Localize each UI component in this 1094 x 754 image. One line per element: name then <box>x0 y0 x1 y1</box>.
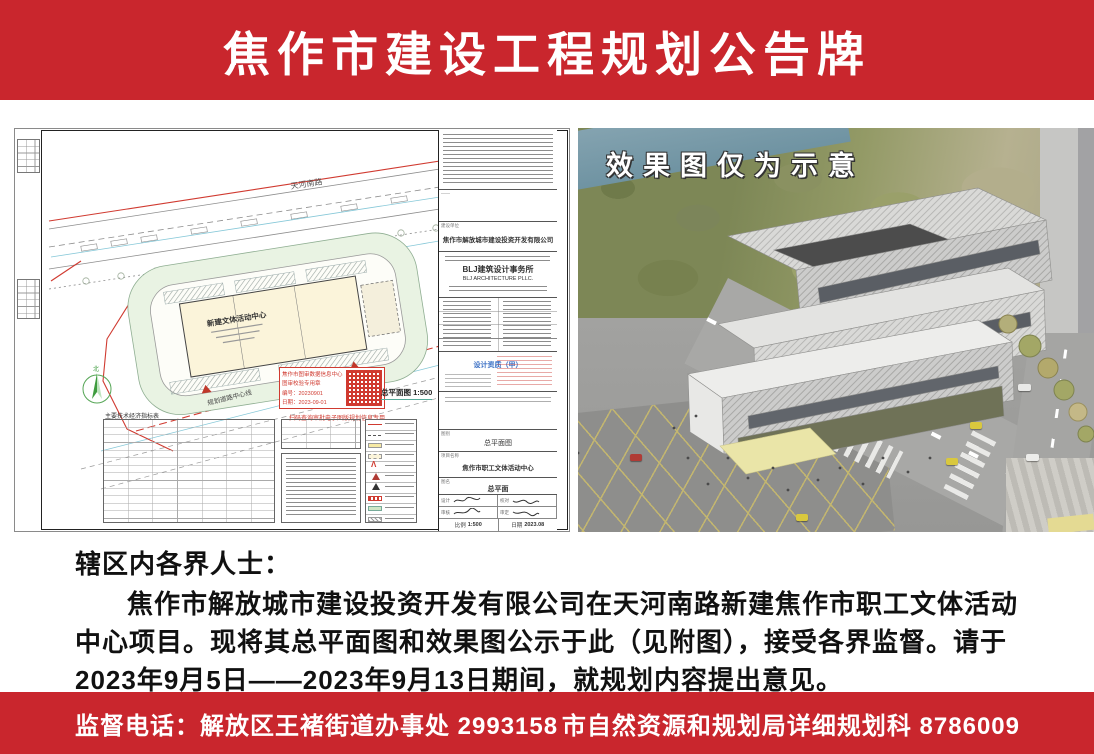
scale-date-row: 比例 1:500 日期 2023.08 <box>439 519 557 531</box>
signature-grid: 设计 校对 审核 审定 <box>439 495 557 519</box>
site-plan-sheet: 天河南路 规划道路中心线 新建文体活动中心 北 焦作市图审数据信息中心 图审校验… <box>14 128 570 532</box>
announcement-board: 焦作市建设工程规划公告牌 <box>0 0 1094 754</box>
rendering-image: 效果图仅为示意 <box>578 128 1094 532</box>
signature-mark <box>511 496 541 505</box>
field-grid <box>439 298 557 352</box>
car <box>1026 454 1039 461</box>
project-label: 项目名称 <box>441 453 459 459</box>
drawing-name-row: 图名 总平面 <box>439 478 557 495</box>
scale-label: 总平面图 1:500 <box>381 387 432 400</box>
client-row: 建设单位 焦作市解放城市建设投资开发有限公司 <box>439 222 557 252</box>
footer-band: 监督电话：解放区王褚街道办事处 2993158 市自然资源和规划局详细规划科 8… <box>0 692 1094 754</box>
design-firm-row: BLJ建筑设计事务所 BLJ ARCHITECTURE PLLC. <box>439 252 557 298</box>
firm-name-cn: BLJ建筑设计事务所 <box>439 264 557 275</box>
rendering-caption: 效果图仅为示意 <box>606 144 865 183</box>
certificate-row <box>439 392 557 430</box>
general-notes <box>439 130 557 190</box>
notice-text: 辖区内各界人士： 焦作市解放城市建设投资开发有限公司在天河南路新建焦作市职工文体… <box>75 545 1025 699</box>
margin-revision-table <box>17 139 40 173</box>
building-massing <box>578 128 1094 532</box>
supervision-phone: 监督电话：解放区王褚街道办事处 2993158 <box>75 706 558 741</box>
scale-value: 1:500 <box>468 522 482 528</box>
sheet-type-row: 图别 总平面图 <box>439 430 557 452</box>
signature-mark <box>452 508 482 517</box>
sub-indicator-table <box>281 419 361 449</box>
notice-body: 焦作市解放城市建设投资开发有限公司在天河南路新建焦作市职工文体活动中心项目。现将… <box>75 585 1025 699</box>
title-block: —— 建设单位 焦作市解放城市建设投资开发有限公司 BLJ建筑设计事务所 BLJ… <box>438 130 557 531</box>
firm-name-en: BLJ ARCHITECTURE PLLC. <box>439 276 557 282</box>
car <box>796 514 808 521</box>
client-name: 焦作市解放城市建设投资开发有限公司 <box>439 234 557 244</box>
notes-box <box>281 453 361 523</box>
compass-label: 北 <box>93 365 99 373</box>
qualification-row: 设计资质（甲） <box>439 352 557 392</box>
car <box>970 422 982 429</box>
stamp-line: 图审校验专用章 <box>282 379 344 387</box>
project-name: 焦作市职工文体活动中心 <box>439 462 557 472</box>
signature-mark <box>452 496 482 505</box>
sig-label: 设计 <box>441 498 450 504</box>
notice-salutation: 辖区内各界人士： <box>75 545 1025 583</box>
sig-label: 校对 <box>500 498 509 504</box>
margin-revision-table <box>17 279 40 319</box>
car <box>946 458 958 465</box>
client-label: 建设单位 <box>441 223 459 229</box>
date-field-label: 日期 <box>511 521 522 529</box>
scale-field-label: 比例 <box>455 521 466 529</box>
drawing-name: 总平面 <box>439 484 557 494</box>
stamp-line: 编号：20230901 <box>282 389 344 397</box>
car <box>630 454 642 461</box>
sig-label: 审定 <box>500 510 509 516</box>
car <box>1018 384 1031 391</box>
header-band: 焦作市建设工程规划公告牌 <box>0 0 1094 100</box>
sheet-type: 总平面图 <box>439 438 557 448</box>
signature-mark <box>511 508 541 517</box>
indicator-table <box>103 419 275 523</box>
date-value: 2023.08 <box>524 522 544 528</box>
project-row: 项目名称 焦作市职工文体活动中心 <box>439 452 557 478</box>
road-label-top: 天河南路 <box>290 176 323 191</box>
page-title: 焦作市建设工程规划公告牌 <box>223 16 871 85</box>
qr-code <box>346 370 382 406</box>
stamp-line: 日期：2023-09-01 <box>282 398 344 406</box>
stamp-line: 焦作市图审数据信息中心 <box>282 370 344 378</box>
legend-table <box>365 419 417 523</box>
seal-area: —— <box>439 190 557 222</box>
sheet-type-label: 图别 <box>441 431 450 437</box>
sig-label: 审核 <box>441 510 450 516</box>
planning-bureau-phone: 市自然资源和规划局详细规划科 8786009 <box>562 706 1020 741</box>
approval-stamp: 焦作市图审数据信息中心 图审校验专用章 编号：20230901 日期：2023-… <box>279 367 385 409</box>
